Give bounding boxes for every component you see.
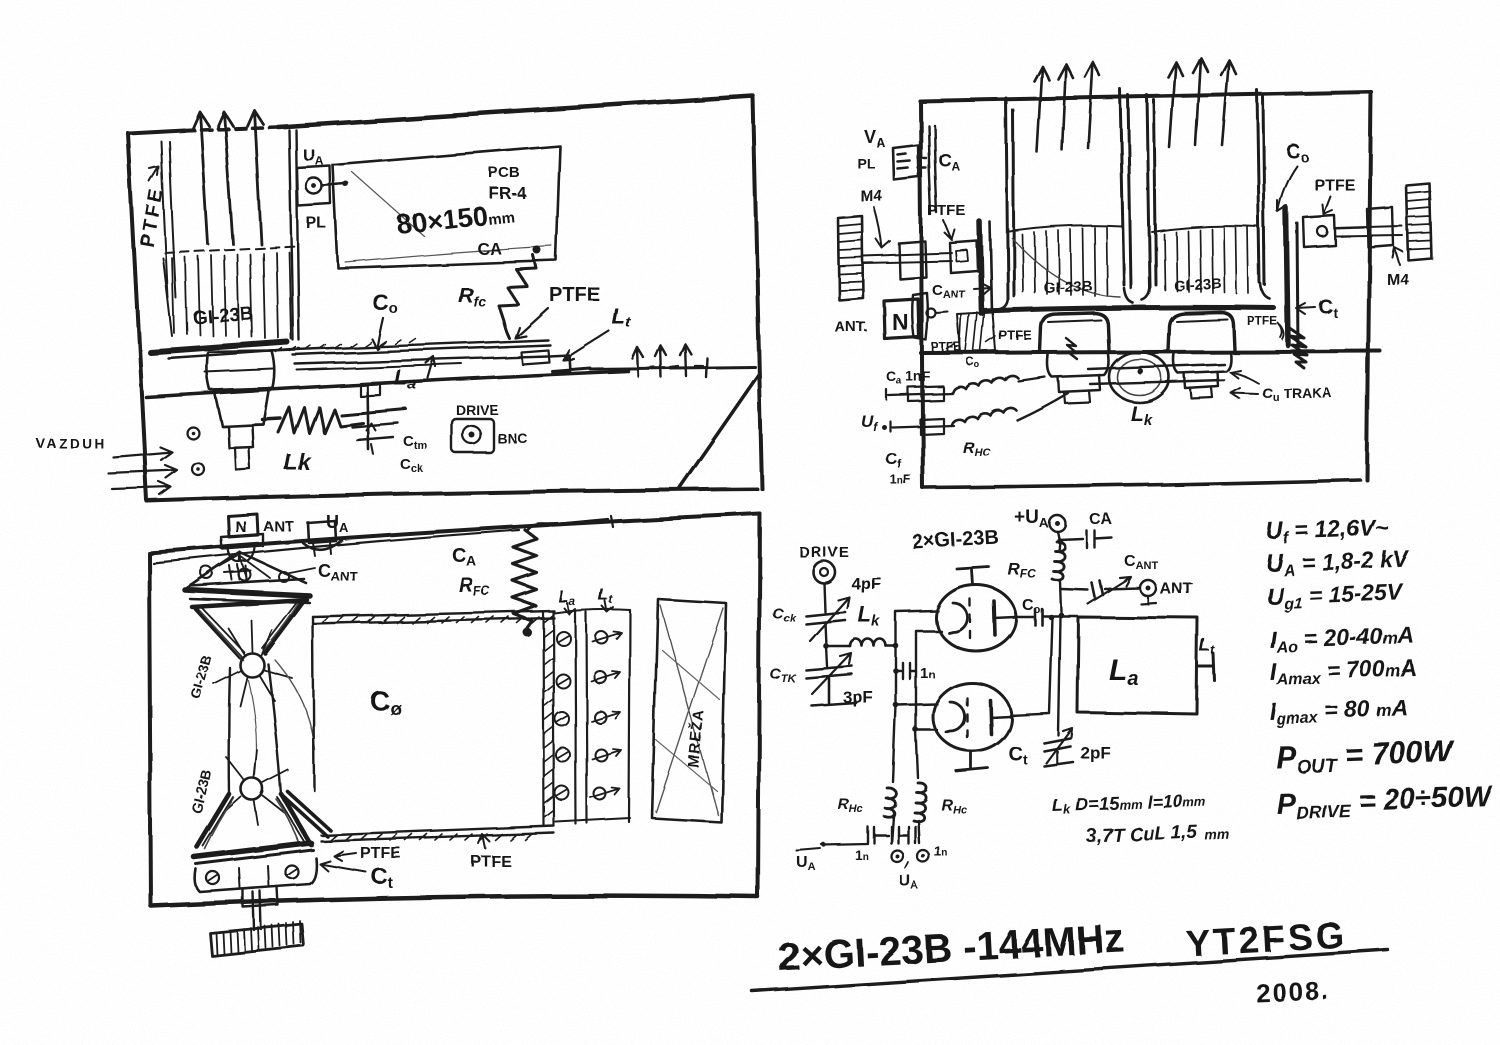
svg-text:PTFE: PTFE (999, 328, 1033, 343)
svg-text:PTFE: PTFE (928, 203, 966, 220)
svg-text:Lk: Lk (284, 449, 312, 475)
svg-text:PL: PL (857, 155, 875, 171)
svg-text:PTFE: PTFE (470, 853, 511, 870)
svg-text:M4: M4 (1386, 271, 1408, 288)
svg-text:CA: CA (1090, 512, 1114, 529)
svg-text:PCB: PCB (489, 165, 521, 182)
svg-text:3,7T CuL 1,5: 3,7T CuL 1,5 (1085, 822, 1198, 847)
svg-text:PTFE: PTFE (549, 284, 600, 306)
svg-text:BNC: BNC (497, 430, 527, 446)
svg-text:PTFE: PTFE (360, 845, 401, 862)
svg-text:PTFE: PTFE (931, 340, 962, 354)
svg-text:N: N (235, 519, 247, 536)
svg-text:ANT.: ANT. (835, 319, 868, 336)
svg-text:PL: PL (306, 215, 327, 232)
svg-text:CA: CA (477, 239, 502, 258)
svg-text:2×GI-23B: 2×GI-23B (911, 526, 999, 553)
svg-text:ANT: ANT (263, 518, 294, 535)
svg-text:mm: mm (1205, 826, 1230, 843)
svg-text:GI-23B: GI-23B (192, 304, 255, 329)
svg-text:M4: M4 (860, 188, 882, 205)
svg-text:FR-4: FR-4 (489, 184, 527, 203)
svg-text:DRIVE: DRIVE (799, 544, 850, 561)
svg-text:PTFE: PTFE (1247, 314, 1278, 328)
svg-text:4pF: 4pF (851, 574, 881, 593)
svg-text:PTFE: PTFE (1314, 177, 1355, 194)
svg-text:GI-23B: GI-23B (1173, 275, 1222, 295)
svg-text:GI-23B: GI-23B (1043, 277, 1092, 297)
svg-text:VAZDUH: VAZDUH (36, 436, 106, 451)
svg-text:N: N (892, 309, 909, 335)
svg-text:DRIVE: DRIVE (455, 401, 498, 417)
svg-text:2008.: 2008. (1255, 975, 1331, 1008)
svg-text:2pF: 2pF (1080, 743, 1110, 762)
svg-text:ANT: ANT (1160, 581, 1193, 598)
